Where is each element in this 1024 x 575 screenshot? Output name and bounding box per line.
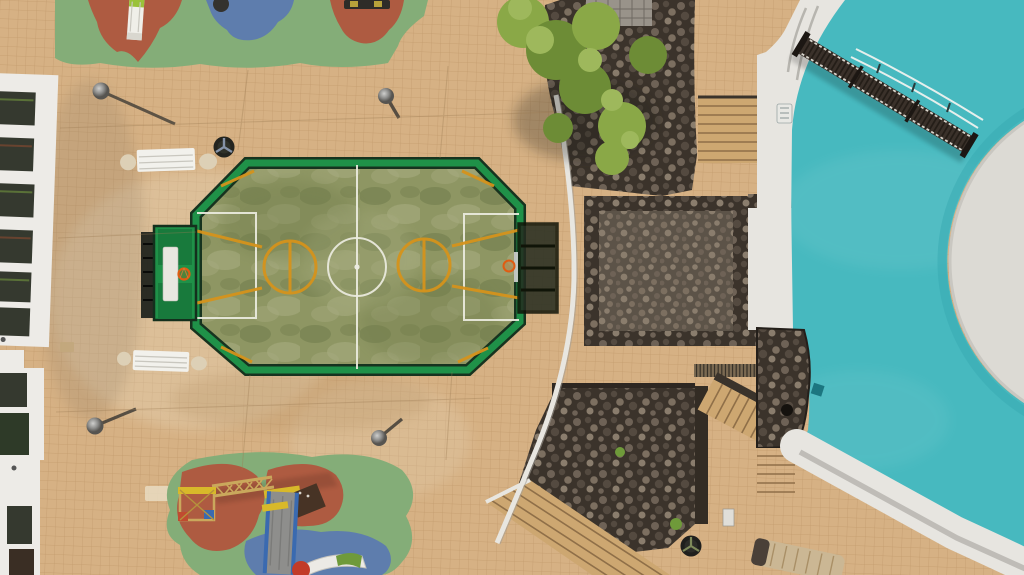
drain-grate [694,364,762,377]
pool-sign [723,509,734,526]
playground-bottom [167,452,413,575]
aerial-courtyard-photo [0,0,1024,575]
basketball-backboard [163,247,178,301]
scene-canvas [0,0,1024,575]
stairs-top [698,97,762,163]
playground-top [55,0,428,68]
goal-left [141,226,196,320]
waste-bin [214,137,235,158]
plant-tuft [615,447,625,457]
plant-tuft [670,518,682,530]
waste-bin [681,536,702,557]
gravel-square [584,196,748,346]
pool-ladder [777,104,792,123]
basketball-hoop [504,261,515,272]
spring-rider [344,0,390,9]
slide-top [127,0,145,40]
